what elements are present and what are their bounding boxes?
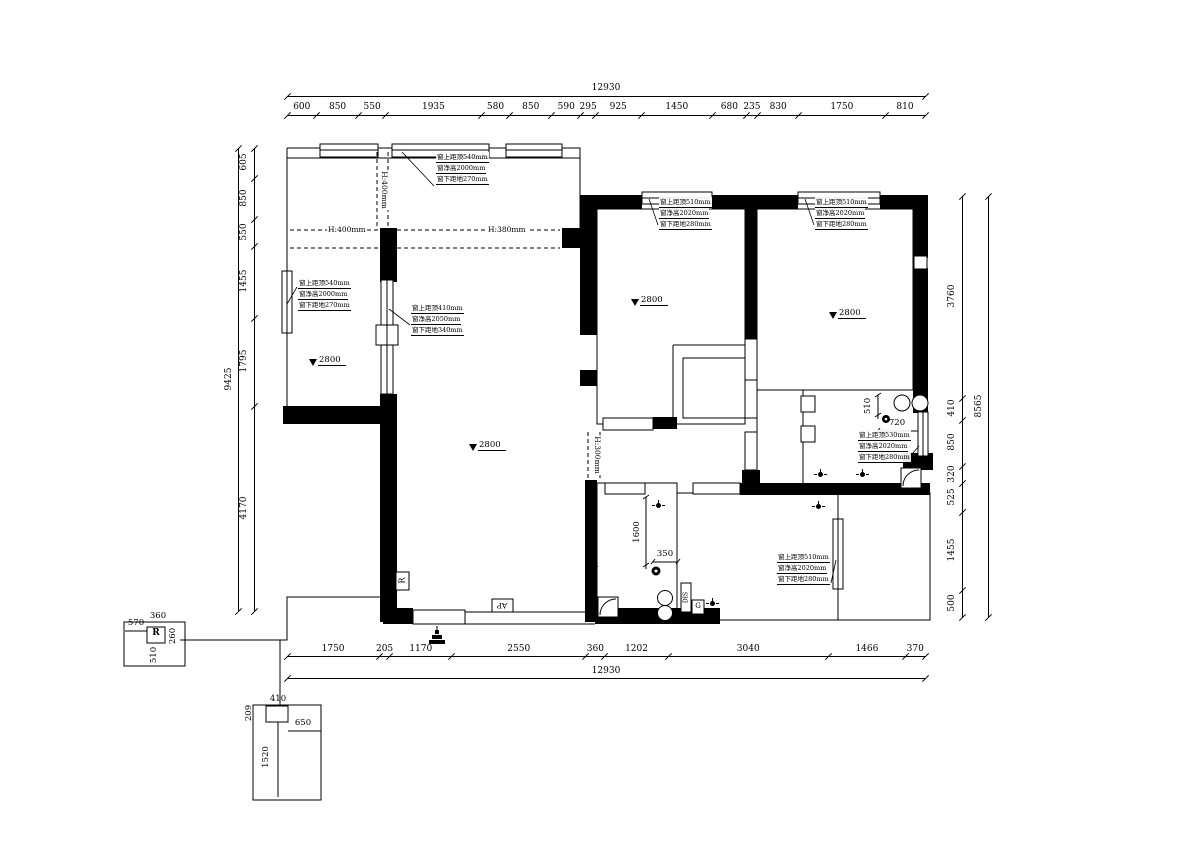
door-jamb xyxy=(801,426,815,442)
vent-window xyxy=(914,256,927,269)
kitchen-sink xyxy=(658,591,673,606)
note-line: 窗净高2000mm xyxy=(298,289,348,300)
lintel xyxy=(693,483,740,494)
level-mark: 2800 xyxy=(631,296,668,306)
dim-value: 525 xyxy=(947,467,957,527)
dim-value: 1795 xyxy=(239,331,249,391)
dim-line xyxy=(988,196,989,617)
note-line: 窗上距顶410mm xyxy=(411,303,464,314)
dim-line xyxy=(287,96,925,97)
dim-value: 1455 xyxy=(947,520,957,580)
device-label-r: R xyxy=(398,571,407,591)
note-line: 窗上距顶540mm xyxy=(298,278,351,289)
detail-dim-650: 650 xyxy=(288,718,318,728)
kitchen-dim-1600: 1600 xyxy=(632,517,642,547)
rbox-dim-360: 360 xyxy=(147,611,169,621)
dim-value: 830 xyxy=(748,102,808,112)
height-label-balcony-divider: H:400mm xyxy=(379,170,389,210)
dim-value: 3760 xyxy=(947,266,957,326)
device-label-ap: AP xyxy=(492,601,512,610)
level-value: 2800 xyxy=(640,296,668,306)
note-line: 窗净高2020mm xyxy=(659,208,709,219)
note-line: 窗净高2000mm xyxy=(436,163,486,174)
rbox-dim-260: 260 xyxy=(168,621,178,651)
lintel xyxy=(603,418,653,430)
note-line: 窗净高2020mm xyxy=(777,563,827,574)
door-jamb xyxy=(801,396,815,412)
note-line: 窗下距地280mm xyxy=(659,219,712,230)
detail-dim-1520: 1520 xyxy=(261,742,271,772)
height-label-balcony-left: H:400mm xyxy=(327,225,367,235)
entrance-marker-icon xyxy=(429,626,445,644)
dim-value: 8565 xyxy=(974,376,984,436)
door-jamb xyxy=(745,380,757,418)
lamp-symbol xyxy=(813,471,828,478)
kitchen-dim-350: 350 xyxy=(650,549,680,559)
rbox-dim-570: 570 xyxy=(125,618,147,628)
level-triangle-icon xyxy=(309,359,317,366)
device-label-drain: DIS xyxy=(682,583,691,613)
note-line: 窗净高2020mm xyxy=(815,208,865,219)
note-line: 窗净高2050mm xyxy=(411,314,461,325)
level-value: 2800 xyxy=(478,441,506,451)
note-line: 窗下距地280mm xyxy=(858,452,911,463)
bathroom-door xyxy=(901,468,921,488)
dim-value: 925 xyxy=(588,102,648,112)
detail-dim-410: 410 xyxy=(263,694,293,704)
dim-value: 1450 xyxy=(647,102,707,112)
lamp-symbol xyxy=(811,503,826,510)
level-triangle-icon xyxy=(469,444,477,451)
level-mark: 2800 xyxy=(829,309,866,319)
dim-value: 12930 xyxy=(576,83,636,93)
window-note-bathroom: 窗上距顶530mm 窗净高2020mm 窗下距地280mm xyxy=(858,430,911,463)
entry-door-opening xyxy=(413,610,465,624)
kitchen-door xyxy=(598,597,618,617)
rbox-dim-510: 510 xyxy=(149,640,159,670)
height-label-balcony-right: H:380mm xyxy=(487,225,527,235)
window-note-lower-right: 窗上距顶510mm 窗净高2020mm 窗下距地280mm xyxy=(777,552,830,585)
note-line: 窗净高2020mm xyxy=(858,441,908,452)
floor-plan: H:400mm H:380mm H:400mm H:300mm 窗上距顶540m… xyxy=(0,0,1200,848)
level-mark: 2800 xyxy=(469,441,506,451)
dim-value: 3040 xyxy=(718,644,778,654)
dim-value: 12930 xyxy=(576,666,636,676)
note-line: 窗上距顶510mm xyxy=(815,197,868,208)
note-line: 窗下距地280mm xyxy=(777,574,830,585)
note-line: 窗上距顶540mm xyxy=(436,152,489,163)
level-mark: 2800 xyxy=(309,356,346,366)
note-line: 窗下距地270mm xyxy=(298,300,351,311)
local-dim-lines xyxy=(646,395,921,569)
dim-value: 2550 xyxy=(489,644,549,654)
dim-value: 1455 xyxy=(239,251,249,311)
dim-line xyxy=(962,196,963,617)
device-label-gas: G xyxy=(693,602,703,611)
dim-line xyxy=(287,678,925,679)
dim-value: 1935 xyxy=(403,102,463,112)
bathroom-sink xyxy=(912,395,928,411)
lintel xyxy=(605,483,645,494)
bath-dim-510: 510 xyxy=(863,391,873,421)
window-note-living-internal: 窗上距顶410mm 窗净高2050mm 窗下距地340mm xyxy=(411,303,464,336)
window-note-middle-bedroom: 窗上距顶510mm 窗净高2020mm 窗下距地280mm xyxy=(659,197,712,230)
dim-value: 810 xyxy=(875,102,935,112)
floor-plan-drawing xyxy=(0,0,1200,848)
window-note-left-room: 窗上距顶540mm 窗净高2000mm 窗下距地270mm xyxy=(298,278,351,311)
dim-value: 550 xyxy=(342,102,402,112)
bath-dim-720: 720 xyxy=(882,418,912,428)
lamp-symbol xyxy=(705,600,720,607)
note-line: 窗上距顶510mm xyxy=(659,197,712,208)
lamp-symbol xyxy=(855,471,870,478)
note-line: 窗下距地270mm xyxy=(436,174,489,185)
lamp-symbol xyxy=(584,563,599,570)
dim-value: 9425 xyxy=(224,349,234,409)
level-triangle-icon xyxy=(829,312,837,319)
dim-line xyxy=(238,148,239,611)
fixtures xyxy=(652,395,928,621)
dim-value: 1170 xyxy=(391,644,451,654)
note-line: 窗上距顶510mm xyxy=(777,552,830,563)
detail-dim-209: 209 xyxy=(244,698,254,728)
height-label-passage: H:300mm xyxy=(592,435,602,475)
dim-value: 1750 xyxy=(812,102,872,112)
level-triangle-icon xyxy=(631,299,639,306)
level-value: 2800 xyxy=(318,356,346,366)
dim-value: 4170 xyxy=(239,478,249,538)
kitchen-sink xyxy=(658,606,673,621)
window-note-right-bedroom: 窗上距顶510mm 窗净高2020mm 窗下距地280mm xyxy=(815,197,868,230)
lamp-symbol xyxy=(651,502,666,509)
level-value: 2800 xyxy=(838,309,866,319)
dim-value: 1202 xyxy=(607,644,667,654)
bathroom-sink xyxy=(894,395,910,411)
note-line: 窗上距顶530mm xyxy=(858,430,911,441)
note-line: 窗下距地280mm xyxy=(815,219,868,230)
rbox-label: R xyxy=(149,628,163,638)
dim-value: 370 xyxy=(885,644,945,654)
window-note-balcony: 窗上距顶540mm 窗净高2000mm 窗下距地270mm xyxy=(436,152,489,185)
door-jamb xyxy=(745,432,757,470)
note-line: 窗下距地340mm xyxy=(411,325,464,336)
dim-value: 500 xyxy=(947,573,957,633)
